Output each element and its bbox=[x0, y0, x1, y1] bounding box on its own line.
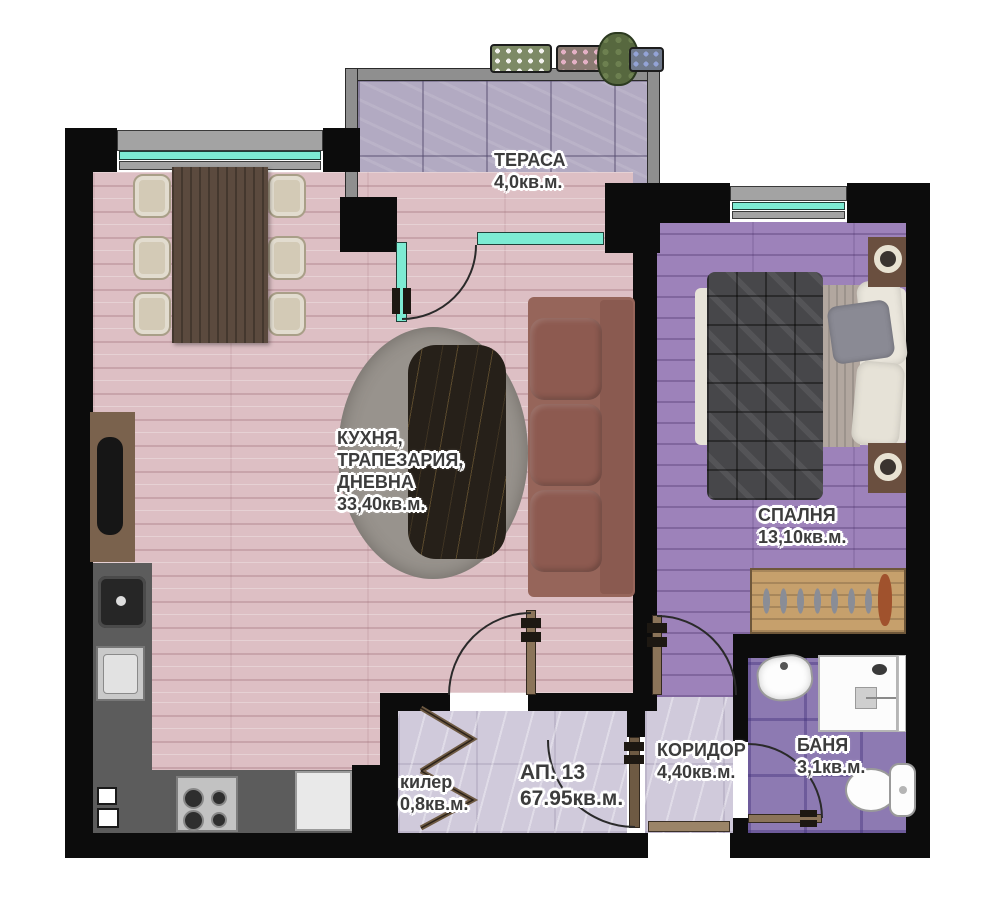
sofa-cushion bbox=[530, 490, 602, 572]
entrance-threshold bbox=[648, 821, 730, 832]
wall-right bbox=[906, 183, 930, 858]
terrace-area: 4,0кв.м. bbox=[494, 172, 566, 194]
sofa-cushion bbox=[530, 318, 602, 400]
hanging-clothes bbox=[758, 574, 880, 628]
bedroom-window-inner bbox=[732, 211, 845, 219]
bed-accent-pillow bbox=[826, 299, 895, 365]
stove-burner bbox=[183, 788, 204, 809]
wall-terrace-left-pier bbox=[340, 197, 397, 252]
wall-left bbox=[65, 128, 93, 858]
wall-bottom-left bbox=[65, 833, 648, 858]
tv bbox=[97, 437, 123, 535]
closet-label: килер 0,8кв.м. bbox=[400, 772, 468, 816]
wall-bedroom-top-left bbox=[643, 183, 730, 223]
wall-niche-small bbox=[97, 787, 117, 805]
toilet-button bbox=[899, 786, 907, 794]
shower-drain bbox=[872, 664, 887, 675]
bathroom-door-handle bbox=[800, 820, 817, 827]
wall-top-mid bbox=[323, 128, 360, 172]
shower-side-panel bbox=[898, 655, 906, 732]
dining-chair bbox=[133, 292, 171, 336]
dining-chair bbox=[268, 236, 306, 280]
bed-blanket bbox=[707, 272, 823, 500]
wall-niche-small bbox=[97, 808, 119, 828]
apartment-total-area: 67.95кв.м. bbox=[520, 786, 623, 812]
bedroom-name: СПАЛНЯ bbox=[758, 505, 846, 527]
bathroom-door-handle bbox=[800, 810, 817, 817]
wall-bathroom-left-lower bbox=[733, 818, 748, 833]
terrace-door-handle bbox=[392, 288, 400, 314]
dining-chair bbox=[268, 174, 306, 218]
flower-box-white bbox=[490, 44, 552, 73]
bathroom-label: БАНЯ 3,1кв.м. bbox=[797, 735, 865, 779]
living-window-sill bbox=[117, 130, 323, 151]
apartment-label: АП. 13 67.95кв.м. bbox=[520, 760, 623, 811]
nightstand-lamp bbox=[874, 453, 902, 481]
wall-bathroom-left-upper bbox=[733, 658, 748, 742]
living-label: КУХНЯ, ТРАПЕЗАРИЯ, ДНЕВНА 33,40кв.м. bbox=[337, 428, 463, 516]
flower-box-blue bbox=[629, 47, 664, 72]
terrace-name: ТЕРАСА bbox=[494, 150, 566, 172]
bedroom-window-glass bbox=[732, 202, 845, 210]
bathroom-name: БАНЯ bbox=[797, 735, 865, 757]
sofa-cushion bbox=[530, 404, 602, 486]
corridor-area: 4,40кв.м. bbox=[657, 762, 746, 784]
bed-pillow bbox=[850, 360, 905, 448]
sofa-backrest bbox=[600, 300, 633, 594]
door-hinge bbox=[521, 632, 541, 642]
wall-top-left bbox=[65, 128, 117, 172]
coffee-machine-dot bbox=[116, 596, 126, 606]
corridor-name: КОРИДОР bbox=[657, 740, 746, 762]
door-hinge bbox=[647, 637, 667, 647]
living-window-glass bbox=[119, 151, 321, 160]
corridor-label: КОРИДОР 4,40кв.м. bbox=[657, 740, 746, 784]
bedroom-area: 13,10кв.м. bbox=[758, 527, 846, 549]
closet-area: 0,8кв.м. bbox=[400, 794, 468, 816]
dining-table bbox=[172, 167, 268, 343]
living-name-line: ТРАПЕЗАРИЯ, bbox=[337, 450, 463, 472]
terrace-door-handle-2 bbox=[403, 288, 411, 314]
bedroom-window-sill bbox=[730, 186, 847, 201]
bathroom-area: 3,1кв.м. bbox=[797, 757, 865, 779]
washbasin-faucet bbox=[780, 662, 788, 670]
terrace-window-glass bbox=[477, 232, 604, 245]
fridge bbox=[295, 771, 352, 831]
stove-burner bbox=[183, 810, 204, 831]
door-hinge bbox=[647, 623, 667, 633]
terrace-label: ТЕРАСА 4,0кв.м. bbox=[494, 150, 566, 194]
living-area: 33,40кв.м. bbox=[337, 494, 463, 516]
closet-name: килер bbox=[400, 772, 468, 794]
wall-hall-corridor-stub bbox=[627, 697, 645, 737]
stove-burner bbox=[211, 790, 227, 806]
living-name-line: КУХНЯ, bbox=[337, 428, 463, 450]
wall-kitchen-stub bbox=[352, 765, 398, 833]
dining-chair bbox=[268, 292, 306, 336]
nightstand-lamp bbox=[874, 245, 902, 273]
bedroom-label: СПАЛНЯ 13,10кв.м. bbox=[758, 505, 846, 549]
wall-bottom-right bbox=[730, 833, 930, 858]
door-hinge bbox=[624, 742, 644, 751]
terrace-railing-right bbox=[647, 68, 660, 188]
floor-plan: ТЕРАСА 4,0кв.м. КУХНЯ, ТРАПЕЗАРИЯ, ДНЕВН… bbox=[0, 0, 1008, 916]
dining-chair bbox=[133, 174, 171, 218]
hanging-clothes-rust bbox=[878, 574, 892, 626]
door-hinge bbox=[521, 618, 541, 628]
living-name-line: ДНЕВНА bbox=[337, 472, 463, 494]
shower-arm bbox=[866, 697, 896, 699]
kitchen-sink-basin bbox=[103, 654, 138, 694]
stove-burner bbox=[211, 812, 227, 828]
door-hinge bbox=[624, 755, 644, 764]
dining-chair bbox=[133, 236, 171, 280]
apartment-number: АП. 13 bbox=[520, 760, 623, 786]
